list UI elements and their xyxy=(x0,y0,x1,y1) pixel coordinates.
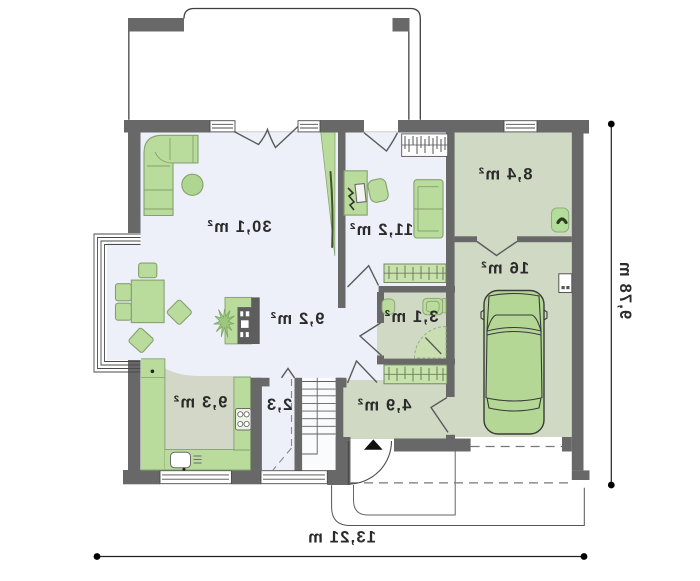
svg-text:2,3: 2,3 xyxy=(266,396,293,414)
svg-text:9,2 m²: 9,2 m² xyxy=(270,310,325,328)
svg-text:4,9 m²: 4,9 m² xyxy=(357,397,412,415)
svg-text:11,2 m²: 11,2 m² xyxy=(349,221,413,239)
svg-text:9,78 m: 9,78 m xyxy=(616,261,634,320)
svg-text:9,3 m²: 9,3 m² xyxy=(173,394,228,412)
svg-text:13,21 m: 13,21 m xyxy=(307,529,376,547)
svg-text:8,4 m²: 8,4 m² xyxy=(478,166,533,184)
svg-text:16 m²: 16 m² xyxy=(480,260,529,278)
svg-text:3,1 m²: 3,1 m² xyxy=(384,308,439,326)
svg-text:30,1 m²: 30,1 m² xyxy=(206,218,271,236)
